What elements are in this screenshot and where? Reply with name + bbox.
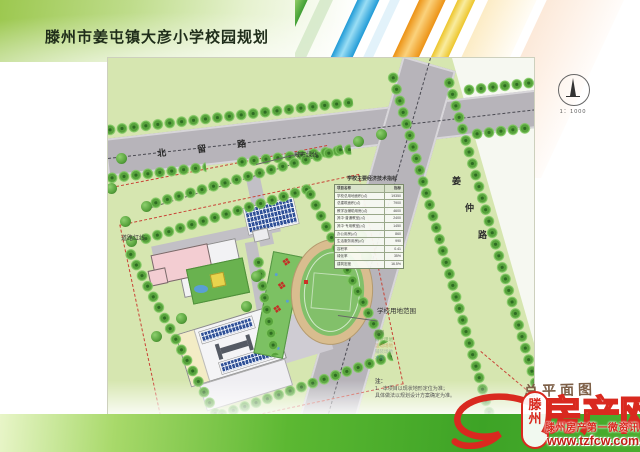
table-cell-value: 990 (384, 238, 403, 245)
tree-icon (151, 331, 162, 342)
notes-line: 具体做法以规划设计方案确定为准。 (375, 393, 455, 400)
table-row: 其中·普通教室(㎡)2400 (335, 215, 403, 223)
pavilion (210, 272, 227, 289)
table-cell-value: 4600 (384, 208, 403, 215)
table-row: 办公用房(㎡)860 (335, 231, 403, 239)
legend-items: 绿化用地运动场地铺装场地水面 (375, 337, 393, 361)
table-row: 建筑密度16.5% (335, 261, 403, 268)
table-cell-item: 生活服务用房(㎡) (335, 238, 384, 245)
table-cell-value: 19350 (384, 193, 403, 200)
table-cell-value: 860 (384, 231, 403, 238)
indicator-table-panel: 项目名称 指标 学校总用地面积(㎡)19350总建筑面积(㎡)7900教学及辅助… (334, 184, 404, 269)
legend-title: 图例 (375, 330, 393, 336)
watermark-tagline: 滕州房产第一微资讯 (545, 419, 640, 434)
tree-icon (251, 271, 262, 282)
table-cell-item: 教学及辅助用房(㎡) (335, 208, 384, 215)
watermark-url: www.tzfcw.com.cn (547, 434, 640, 448)
road-red-line-label: 道路红线 (121, 233, 145, 242)
pond (194, 285, 208, 293)
north-road-label-char: 留 (196, 141, 207, 155)
notes-line: 1、本项目以现状地形定位为准； (375, 386, 455, 393)
east-road-label-char: 仲 (465, 201, 474, 214)
table-cell-item: 绿化率 (335, 253, 384, 260)
tree-icon (120, 216, 131, 227)
table-cell-value: 35% (384, 253, 403, 260)
north-arrow-icon (558, 74, 590, 106)
table-cell-item: 学校总用地面积(㎡) (335, 193, 384, 200)
table-cell-value: 1450 (384, 223, 403, 230)
tree-icon (241, 301, 252, 312)
site-marker-red (304, 280, 308, 284)
indicator-table-title: 学校主要经济技术指标 (336, 175, 408, 182)
tree-icon (107, 183, 117, 194)
table-col-value: 指标 (384, 185, 403, 192)
table-cell-item: 其中·专用教室(㎡) (335, 223, 384, 230)
watermark: 滕 州 房 产 网 滕州房产第一微资讯 www.tzfcw.com.cn (450, 383, 640, 452)
tree-icon (376, 129, 387, 140)
notes-label: 注： (375, 379, 455, 386)
tree-icon (176, 313, 187, 324)
indicator-table: 学校主要经济技术指标 项目名称 指标 学校总用地面积(㎡)19350总建筑面积(… (334, 175, 418, 269)
table-row: 学校总用地面积(㎡)19350 (335, 193, 403, 201)
table-cell-value: 16.5% (384, 261, 403, 268)
table-cell-item: 容积率 (335, 246, 384, 253)
table-cell-item: 总建筑面积(㎡) (335, 200, 384, 207)
site-plan: ❖ ❖ ❖ ❖ 北 留 路 姜 仲 路 城市绿线 道路红线 学校用地范围 (107, 57, 535, 415)
table-cell-item: 其中·普通教室(㎡) (335, 215, 384, 222)
north-needle (570, 78, 576, 96)
tree-icon (353, 136, 364, 147)
table-cell-item: 办公用房(㎡) (335, 231, 384, 238)
table-col-item: 项目名称 (335, 185, 384, 192)
plan-notes: 注： 1、本项目以现状地形定位为准；具体做法以规划设计方案确定为准。 (375, 379, 455, 399)
scale-label: 1：1000 (551, 107, 595, 115)
map-legend: 图例 绿化用地运动场地铺装场地水面 (375, 330, 393, 361)
table-row: 生活服务用房(㎡)990 (335, 238, 403, 246)
city-green-line-label: 城市绿线 (294, 150, 318, 159)
table-row: 容积率0.41 (335, 246, 403, 254)
table-row: 其中·专用教室(㎡)1450 (335, 223, 403, 231)
east-road-label-char: 姜 (452, 174, 461, 187)
page-title: 滕州市姜屯镇大彦小学校园规划 (45, 26, 269, 47)
notes-lines: 1、本项目以现状地形定位为准；具体做法以规划设计方案确定为准。 (375, 386, 455, 399)
table-row: 教学及辅助用房(㎡)4600 (335, 208, 403, 216)
tree-icon (116, 153, 127, 164)
north-road-label-char: 路 (236, 136, 247, 150)
screenshot-root: 滕州市姜屯镇大彦小学校园规划 (0, 0, 640, 452)
table-cell-value: 2400 (384, 215, 403, 222)
table-row: 绿化率35% (335, 253, 403, 261)
table-header-row: 项目名称 指标 (335, 185, 403, 193)
tree-icon (141, 201, 152, 212)
site-boundary-label: 学校用地范围 (377, 305, 416, 315)
legend-item: 水面 (375, 355, 393, 361)
north-road-label-char: 北 (156, 145, 167, 159)
table-cell-value: 0.41 (384, 246, 403, 253)
indicator-table-body: 学校总用地面积(㎡)19350总建筑面积(㎡)7900教学及辅助用房(㎡)460… (335, 193, 403, 268)
table-row: 总建筑面积(㎡)7900 (335, 200, 403, 208)
table-cell-value: 7900 (384, 200, 403, 207)
east-road-label-char: 路 (478, 228, 487, 241)
table-cell-item: 建筑密度 (335, 261, 384, 268)
